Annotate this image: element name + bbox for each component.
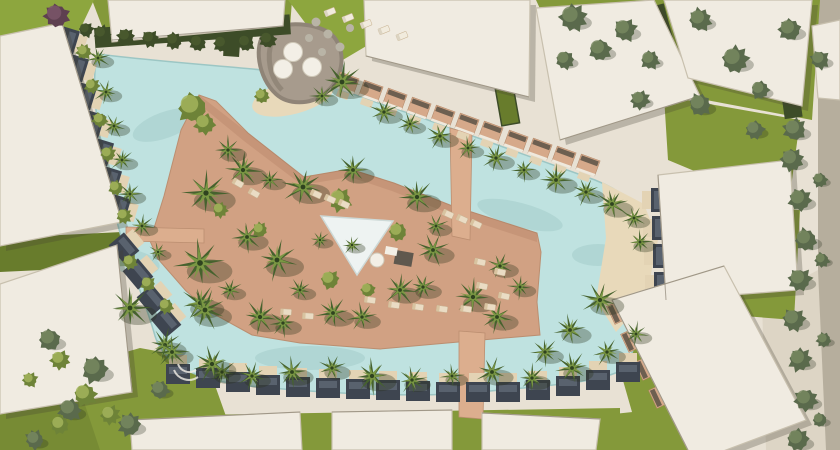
sun-lounger	[412, 303, 424, 310]
stepping-stone	[312, 18, 321, 27]
round-daybed	[274, 60, 293, 79]
sun-lounger	[302, 313, 313, 320]
scene-canvas	[0, 0, 840, 450]
sun-lounger	[364, 296, 376, 303]
sun-lounger	[388, 301, 400, 308]
stepping-stone	[324, 30, 333, 39]
sun-lounger	[484, 303, 496, 310]
stepping-stone	[305, 34, 313, 42]
sun-lounger	[460, 305, 472, 312]
sun-lounger	[436, 305, 448, 312]
deck-umbrella	[370, 253, 384, 267]
round-daybed	[303, 58, 322, 77]
stepping-stone	[346, 24, 354, 32]
building-roof	[332, 410, 452, 450]
stepping-stone	[318, 48, 326, 56]
sun-lounger	[280, 309, 291, 316]
resort-aerial-rendering	[0, 0, 840, 450]
umbrella	[370, 253, 384, 267]
stepping-stone	[336, 43, 345, 52]
round-daybed	[284, 43, 303, 62]
